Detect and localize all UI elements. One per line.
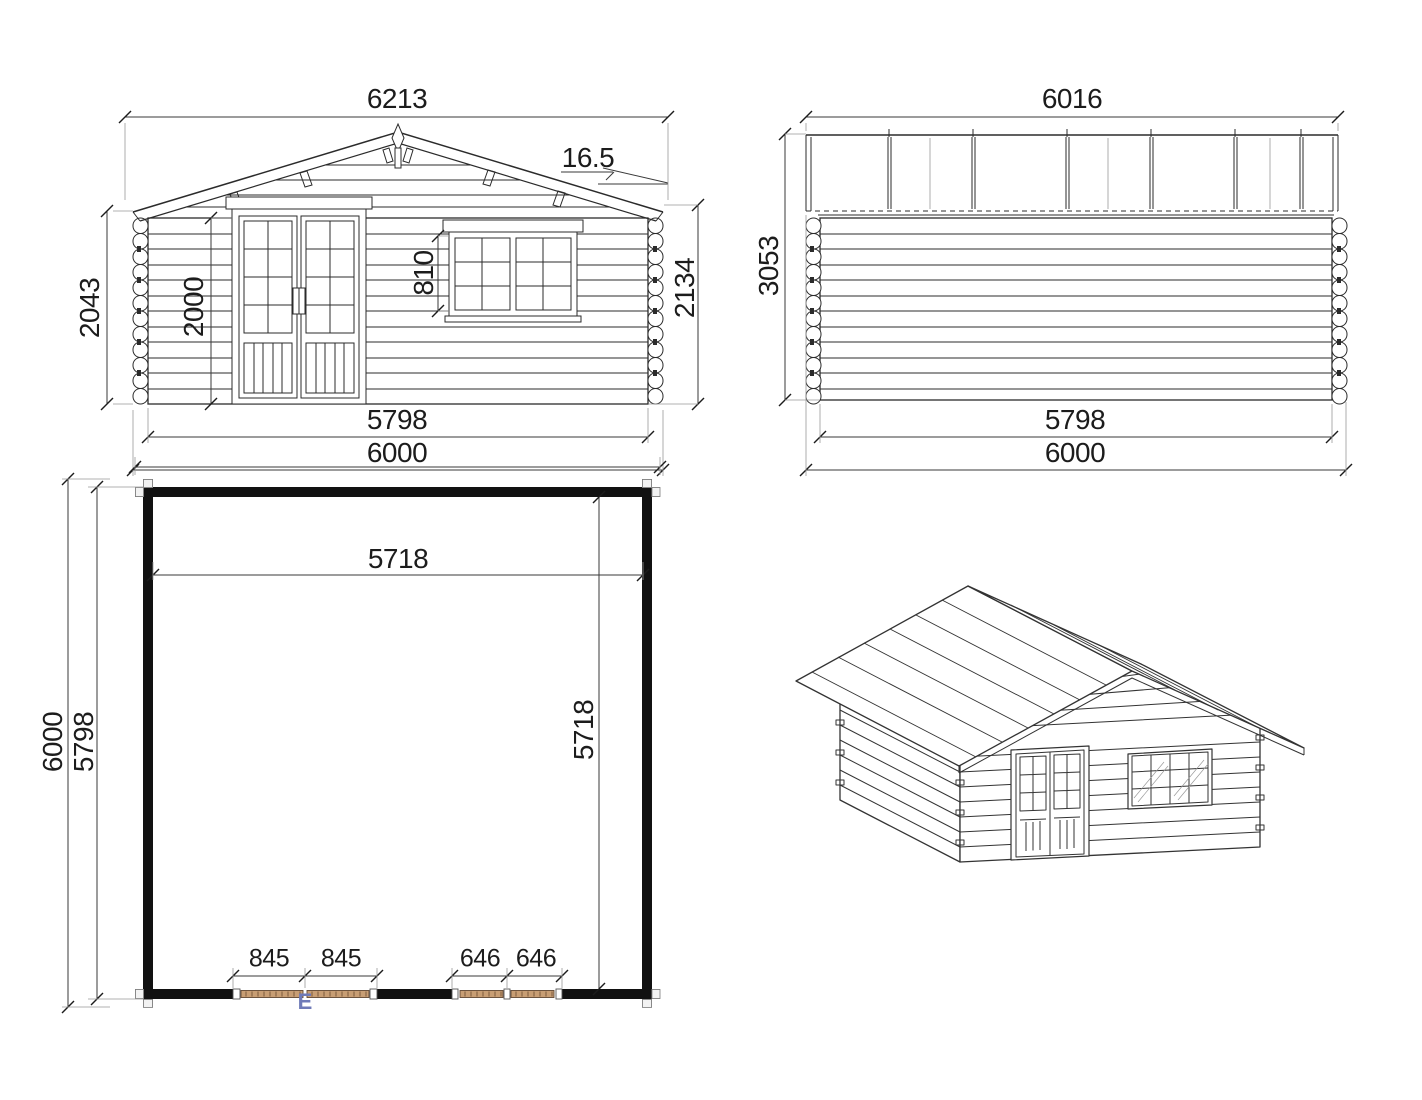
- plan-door-entry-marker: E: [298, 991, 313, 1013]
- side-wall-logs: [806, 218, 1347, 404]
- dim-front-right-height: 2134: [671, 258, 699, 318]
- dim-plan-inner-depth: 5718: [570, 700, 598, 760]
- door-handle: [293, 288, 305, 314]
- dim-plan-inner-width: 5718: [368, 545, 428, 573]
- front-wall-logs: [133, 165, 663, 404]
- isometric-drawing: [796, 586, 1304, 862]
- dim-plan-door-leaf-left: 845: [249, 947, 289, 972]
- roof-finial: [392, 124, 404, 168]
- front-right-log-ends: [648, 218, 663, 404]
- side-left-log-ends: [806, 218, 821, 404]
- iso-door: [1011, 746, 1089, 860]
- dim-side-overall-length: 6000: [1045, 439, 1105, 467]
- dim-plan-door-leaf-right: 845: [321, 947, 361, 972]
- plan-window: [452, 989, 562, 999]
- drawing-sheet: 6213 16.5 2043 2000 810 2134 5798 6000 6…: [0, 0, 1422, 1100]
- iso-window: [1128, 749, 1212, 809]
- dim-front-left-height: 2043: [76, 278, 104, 338]
- dim-plan-overall-depth: 6000: [39, 712, 67, 772]
- dim-plan-wall-depth: 5798: [70, 712, 98, 772]
- front-left-log-ends: [133, 218, 148, 404]
- drawing-canvas: [0, 0, 1422, 1100]
- dim-front-door-height: 2000: [180, 277, 208, 337]
- dim-front-window-height: 810: [410, 250, 438, 295]
- side-right-log-ends: [1332, 218, 1347, 404]
- front-window: [443, 220, 583, 322]
- dim-front-roof-width: 6213: [367, 85, 427, 113]
- dim-front-overall-width: 6000: [367, 439, 427, 467]
- dim-front-wall-length: 5798: [367, 406, 427, 434]
- side-roof: [806, 129, 1338, 215]
- dim-side-wall-length: 5798: [1045, 406, 1105, 434]
- front-door: [226, 197, 372, 404]
- dim-plan-window-leaf-right: 646: [516, 947, 556, 972]
- dim-side-ridge-height: 3053: [755, 236, 783, 296]
- dim-plan-window-leaf-left: 646: [460, 947, 500, 972]
- dim-side-roof-length: 6016: [1042, 85, 1102, 113]
- dim-front-roof-pitch: 16.5: [562, 144, 615, 172]
